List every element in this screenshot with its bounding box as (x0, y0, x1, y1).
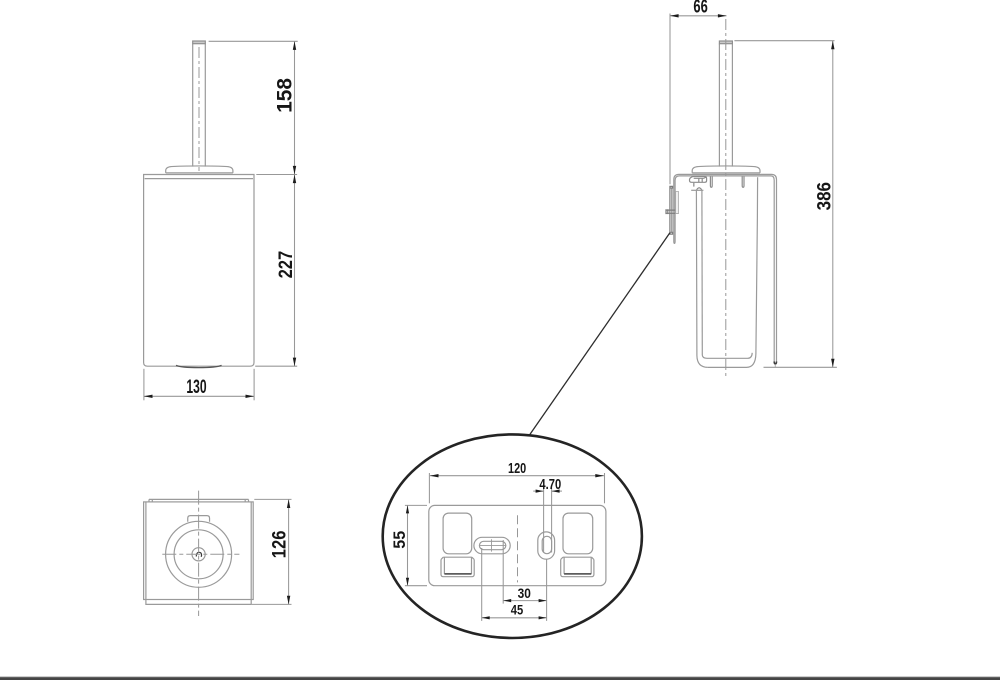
svg-text:55: 55 (390, 531, 409, 549)
svg-text:45: 45 (511, 602, 523, 617)
svg-text:158: 158 (273, 78, 296, 113)
svg-text:4.70: 4.70 (539, 475, 561, 492)
svg-text:126: 126 (268, 531, 290, 559)
svg-text:30: 30 (518, 585, 531, 601)
svg-text:130: 130 (186, 376, 206, 398)
svg-text:120: 120 (508, 460, 526, 477)
svg-text:227: 227 (275, 251, 297, 279)
svg-text:386: 386 (812, 182, 834, 210)
svg-text:66: 66 (693, 0, 707, 17)
